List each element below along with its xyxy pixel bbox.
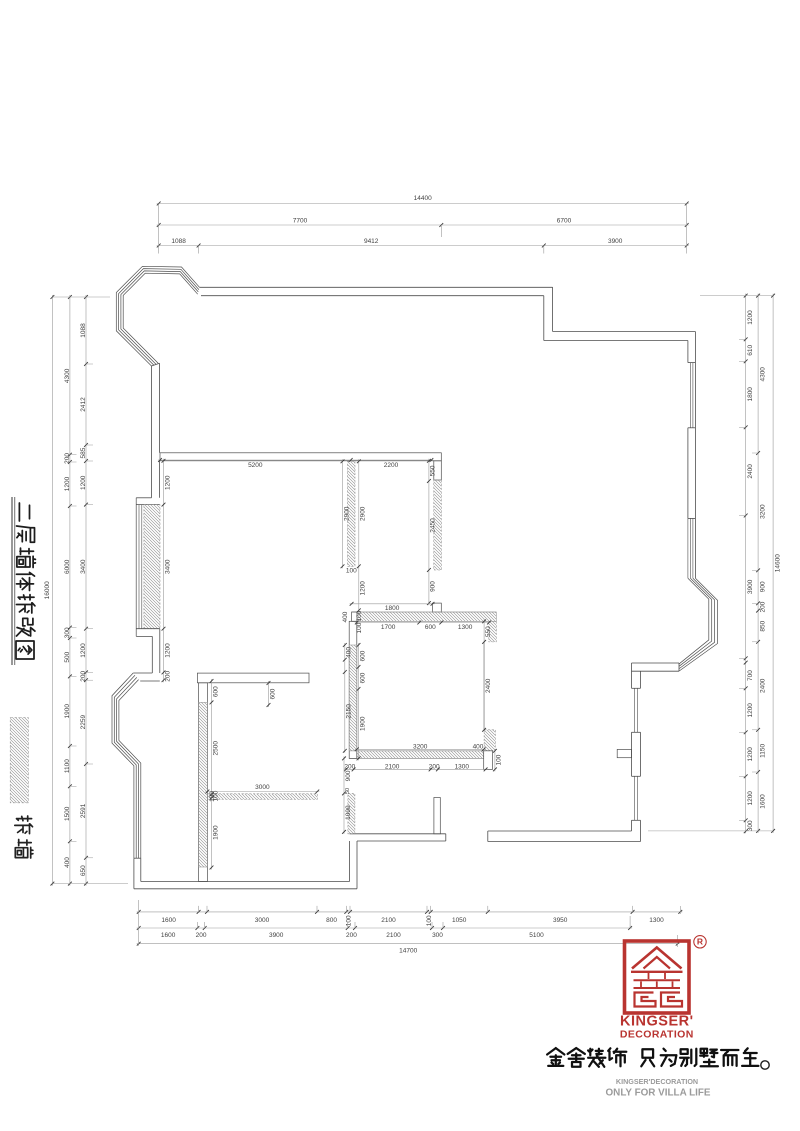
- svg-text:2412: 2412: [80, 397, 87, 412]
- svg-text:50: 50: [345, 788, 351, 794]
- svg-text:9412: 9412: [364, 238, 379, 245]
- svg-text:1200: 1200: [747, 703, 754, 718]
- svg-text:5100: 5100: [529, 932, 544, 939]
- svg-text:585: 585: [80, 447, 87, 458]
- svg-text:600: 600: [269, 688, 276, 699]
- svg-text:200: 200: [346, 932, 357, 939]
- svg-text:1600: 1600: [161, 932, 176, 939]
- svg-text:1800: 1800: [747, 387, 754, 402]
- svg-text:6000: 6000: [64, 559, 71, 574]
- svg-text:200: 200: [64, 453, 71, 464]
- svg-text:600: 600: [359, 672, 366, 683]
- svg-text:550: 550: [485, 626, 492, 637]
- svg-text:7700: 7700: [293, 218, 308, 225]
- svg-text:14700: 14700: [399, 948, 417, 955]
- svg-text:900: 900: [430, 581, 437, 592]
- svg-text:16000: 16000: [44, 581, 51, 599]
- svg-text:100: 100: [209, 791, 216, 802]
- svg-text:500: 500: [64, 651, 71, 662]
- svg-text:1050: 1050: [452, 917, 467, 924]
- svg-text:850: 850: [760, 620, 767, 631]
- svg-text:1300: 1300: [649, 917, 664, 924]
- svg-text:ONLY FOR VILLA LIFE: ONLY FOR VILLA LIFE: [606, 1088, 711, 1099]
- svg-text:1200: 1200: [80, 475, 87, 490]
- svg-text:2100: 2100: [386, 932, 401, 939]
- svg-text:1200: 1200: [747, 747, 754, 762]
- svg-text:1300: 1300: [455, 764, 470, 771]
- svg-text:R: R: [697, 937, 703, 947]
- svg-text:200: 200: [164, 670, 171, 681]
- svg-text:100: 100: [345, 915, 352, 926]
- svg-text:2400: 2400: [747, 464, 754, 479]
- svg-text:1900: 1900: [212, 825, 219, 840]
- svg-text:5200: 5200: [248, 462, 263, 469]
- svg-text:200: 200: [429, 764, 440, 771]
- svg-text:1200: 1200: [64, 476, 71, 491]
- svg-text:3400: 3400: [164, 559, 171, 574]
- svg-text:3400: 3400: [80, 559, 87, 574]
- svg-text:600: 600: [359, 650, 366, 661]
- svg-text:3900: 3900: [608, 238, 623, 245]
- svg-text:2500: 2500: [212, 741, 219, 756]
- svg-text:600: 600: [212, 686, 219, 697]
- svg-text:3950: 3950: [553, 917, 568, 924]
- svg-text:1200: 1200: [164, 643, 171, 658]
- svg-text:2100: 2100: [385, 764, 400, 771]
- svg-text:700: 700: [747, 670, 754, 681]
- svg-text:200: 200: [80, 670, 87, 681]
- svg-text:KINGSER': KINGSER': [620, 1014, 694, 1030]
- svg-text:2100: 2100: [381, 917, 396, 924]
- svg-text:14600: 14600: [775, 554, 782, 572]
- svg-text:2900: 2900: [343, 506, 350, 521]
- svg-text:4300: 4300: [64, 368, 71, 383]
- svg-text:1200: 1200: [360, 581, 367, 596]
- svg-text:800: 800: [326, 917, 337, 924]
- svg-text:1300: 1300: [458, 624, 473, 631]
- svg-text:100: 100: [356, 610, 363, 621]
- svg-text:1000: 1000: [345, 805, 352, 820]
- svg-text:3200: 3200: [413, 743, 428, 750]
- svg-text:1200: 1200: [747, 791, 754, 806]
- svg-text:DECORATION: DECORATION: [620, 1029, 694, 1041]
- svg-text:1200: 1200: [80, 643, 87, 658]
- svg-text:2450: 2450: [430, 518, 437, 533]
- svg-text:300: 300: [432, 932, 443, 939]
- svg-text:3900: 3900: [747, 579, 754, 594]
- svg-text:550: 550: [430, 465, 437, 476]
- svg-text:3000: 3000: [255, 784, 270, 791]
- svg-text:1600: 1600: [760, 794, 767, 809]
- svg-text:200: 200: [344, 764, 355, 771]
- svg-text:300: 300: [64, 627, 71, 638]
- svg-text:2259: 2259: [80, 714, 87, 729]
- svg-text:2400: 2400: [485, 678, 492, 693]
- svg-text:2150: 2150: [346, 704, 353, 719]
- svg-text:3900: 3900: [269, 932, 284, 939]
- svg-text:400: 400: [346, 647, 353, 658]
- svg-text:1100: 1100: [64, 759, 71, 773]
- svg-text:4300: 4300: [760, 367, 767, 382]
- svg-text:200: 200: [760, 601, 767, 612]
- svg-text:1900: 1900: [359, 716, 366, 731]
- svg-text:400: 400: [64, 857, 71, 868]
- svg-text:100: 100: [346, 568, 357, 575]
- svg-text:650: 650: [80, 865, 87, 876]
- svg-text:200: 200: [196, 932, 207, 939]
- svg-text:3000: 3000: [255, 917, 270, 924]
- svg-text:300: 300: [747, 820, 754, 831]
- svg-text:1500: 1500: [64, 806, 71, 821]
- svg-text:2900: 2900: [360, 506, 367, 521]
- svg-text:600: 600: [425, 624, 436, 631]
- svg-text:2200: 2200: [384, 462, 399, 469]
- svg-text:400: 400: [342, 611, 349, 622]
- svg-text:610: 610: [747, 344, 754, 355]
- svg-text:1088: 1088: [80, 323, 87, 338]
- svg-text:6700: 6700: [557, 218, 572, 225]
- svg-text:100: 100: [496, 754, 503, 765]
- svg-text:1700: 1700: [381, 624, 396, 631]
- svg-text:1150: 1150: [760, 744, 767, 758]
- svg-text:2400: 2400: [760, 678, 767, 693]
- svg-text:100: 100: [356, 622, 363, 633]
- svg-text:3200: 3200: [760, 504, 767, 519]
- svg-text:14400: 14400: [414, 195, 432, 202]
- svg-text:2591: 2591: [80, 803, 87, 818]
- svg-text:KINGSER'DECORATION: KINGSER'DECORATION: [616, 1077, 698, 1086]
- svg-text:900: 900: [345, 770, 352, 781]
- svg-text:900: 900: [760, 581, 767, 592]
- svg-text:1200: 1200: [164, 475, 171, 490]
- svg-text:1200: 1200: [747, 310, 754, 325]
- svg-text:400: 400: [473, 744, 484, 751]
- svg-text:1800: 1800: [385, 605, 400, 612]
- svg-text:1600: 1600: [161, 917, 176, 924]
- svg-text:1900: 1900: [64, 704, 71, 719]
- svg-text:1088: 1088: [171, 238, 186, 245]
